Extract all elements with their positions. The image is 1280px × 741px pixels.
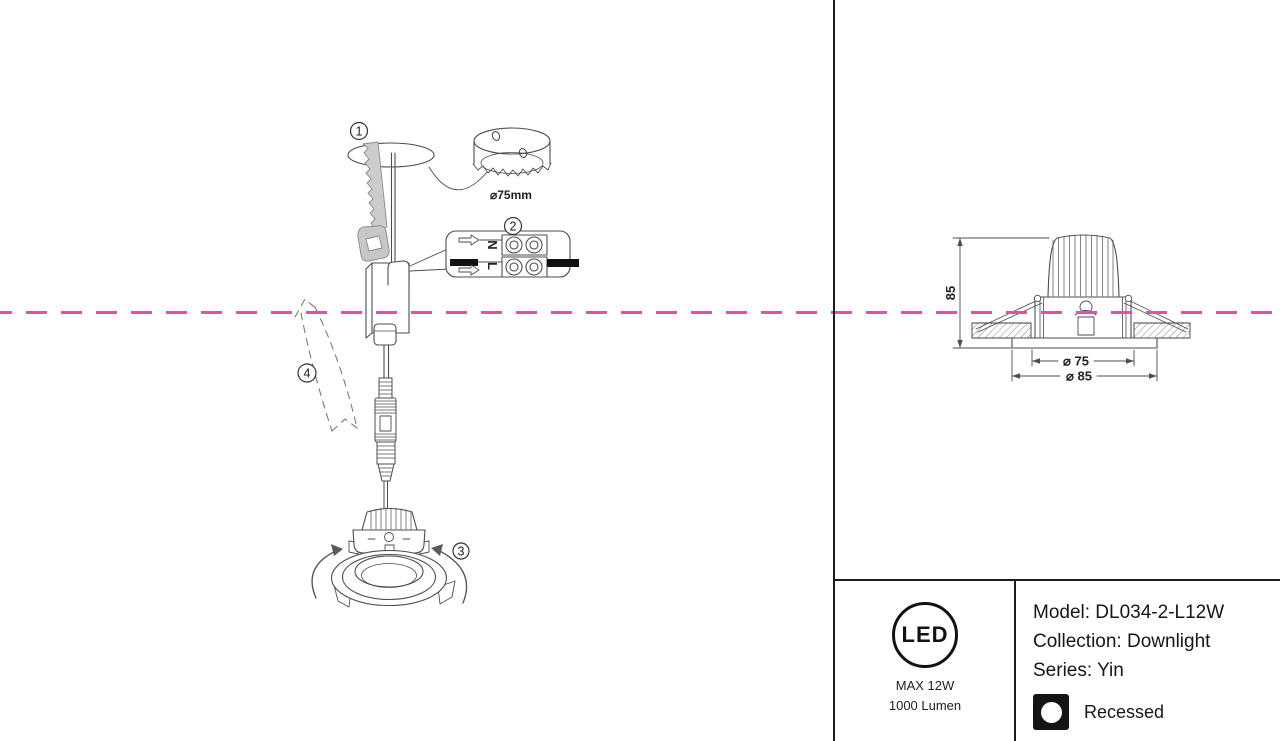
dimension-drawing: 85 ⌀ 75 ⌀ 85 [930, 220, 1220, 395]
cutout-dimension-label: ⌀ 75 [1063, 354, 1089, 369]
svg-text:4: 4 [304, 367, 311, 381]
cable-connector-drawing [375, 378, 396, 509]
led-driver-drawing [366, 261, 409, 378]
ceiling-cut-drawing [348, 142, 434, 262]
overall-dimension-label: ⌀ 85 [1066, 369, 1092, 384]
terminal-l-label: L [485, 262, 500, 270]
collection-label: Collection: Downlight [1033, 627, 1280, 656]
downlight-fixture-drawing [332, 508, 456, 607]
led-logo: LED [892, 602, 958, 668]
terminal-n-label: N [485, 240, 500, 249]
svg-text:2: 2 [510, 220, 517, 234]
installation-diagram: ⌀75mm 1 N L 2 [0, 0, 834, 741]
lumen-label: 1000 Lumen [889, 697, 961, 714]
step-1-marker: 1 [351, 123, 368, 140]
led-logo-text: LED [902, 622, 949, 648]
titleblock-divider [1014, 579, 1016, 741]
max-power-label: MAX 12W [896, 677, 955, 694]
black-wire-left [450, 259, 478, 266]
product-info-cell: Model: DL034-2-L12W Collection: Downligh… [1017, 581, 1280, 741]
svg-text:3: 3 [458, 545, 465, 559]
series-label: Series: Yin [1033, 656, 1280, 685]
title-block: LED MAX 12W 1000 Lumen Model: DL034-2-L1… [835, 581, 1280, 741]
fixture-section [972, 235, 1190, 348]
model-label: Model: DL034-2-L12W [1033, 598, 1280, 627]
hole-saw-label: ⌀75mm [490, 188, 532, 202]
step-2-marker: 2 [505, 218, 522, 235]
height-dimension-label: 85 [943, 286, 958, 300]
recessed-icon-dot [1041, 702, 1062, 723]
mounting-row: Recessed [1033, 694, 1280, 730]
hole-saw-drawing [429, 128, 551, 190]
datasheet-page: ⌀75mm 1 N L 2 [0, 0, 1280, 741]
titleblock-border-top [833, 579, 1280, 581]
step-4-marker: 4 [298, 364, 316, 382]
ceiling-hatch-right [1134, 323, 1190, 338]
step-3-marker: 3 [453, 543, 469, 559]
led-spec-cell: LED MAX 12W 1000 Lumen [835, 581, 1015, 741]
recessed-label: Recessed [1084, 702, 1164, 723]
sheet-divider-vertical [833, 0, 835, 741]
black-wire-right [547, 259, 579, 267]
recessed-icon [1033, 694, 1069, 730]
wire-connector-drawing [410, 231, 579, 277]
svg-text:1: 1 [356, 125, 363, 139]
